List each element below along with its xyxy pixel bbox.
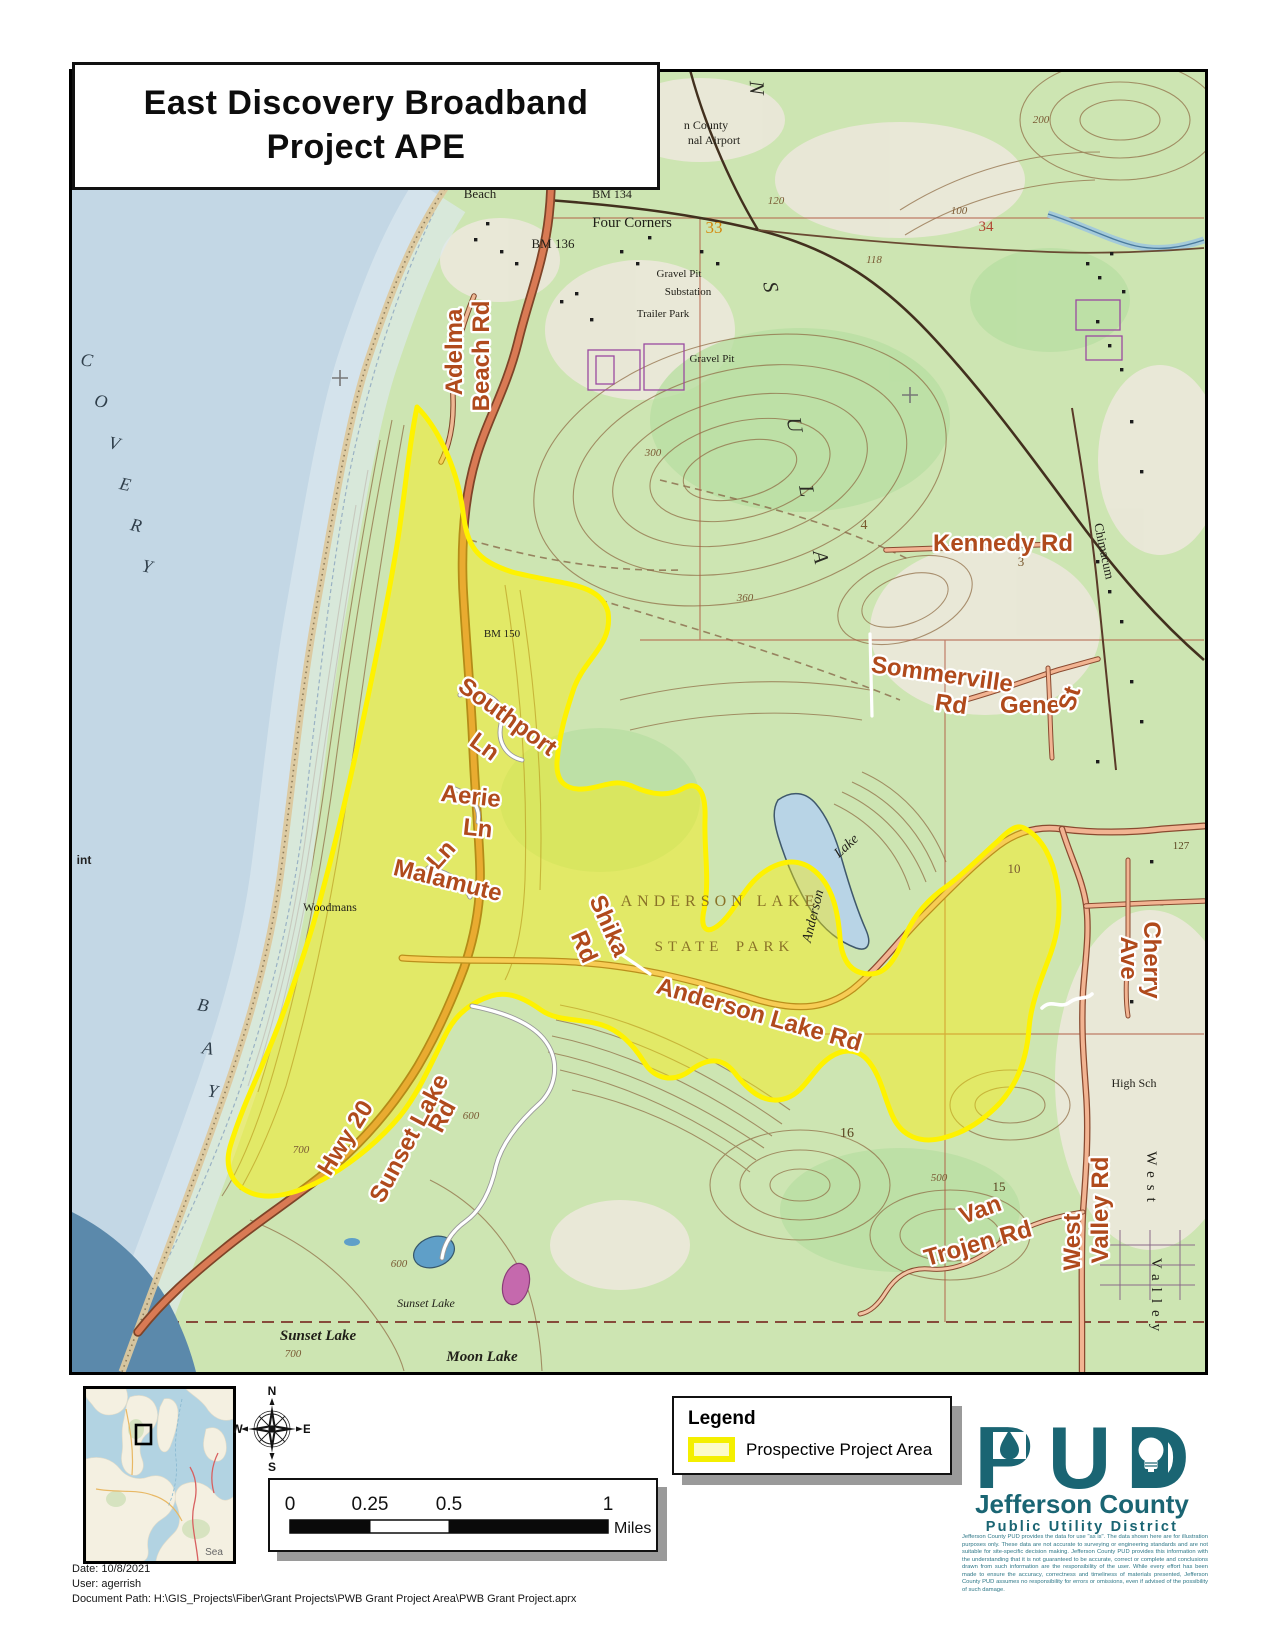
- elevation-127: 127: [1173, 840, 1190, 852]
- road-label-adelma-beach-rd: Beach Rd: [468, 301, 495, 412]
- contour-label-300: 300: [644, 447, 662, 459]
- lake-label-sunset-script: Sunset Lake: [397, 1296, 455, 1310]
- place-label-gravel-pit-2: Gravel Pit: [690, 353, 735, 365]
- north-arrow-icon: N S W E: [234, 1384, 310, 1472]
- benchmark-136: BM 136: [532, 236, 575, 251]
- scale-bar: 0 0.25 0.5 1 Miles: [270, 1480, 656, 1550]
- spot-elevation-118: 118: [866, 254, 882, 266]
- peninsula-letter-n: N: [745, 79, 770, 96]
- scale-tick-1: 1: [603, 1494, 614, 1515]
- map-document-page: Beach Four Corners BM 134 BM 136 Gravel …: [0, 0, 1275, 1650]
- map-canvas: Beach Four Corners BM 134 BM 136 Gravel …: [72, 72, 1205, 1372]
- footer-metadata: Date: 10/8/2021 User: agerrish Document …: [72, 1562, 576, 1607]
- project-area-swatch: [688, 1437, 735, 1462]
- compass-s-label: S: [268, 1460, 276, 1472]
- compass-n-label: N: [268, 1384, 277, 1398]
- compass-w-label: W: [234, 1422, 243, 1436]
- park-label-anderson-lake: ANDERSON LAKE: [621, 893, 820, 910]
- place-label-woodmans: Woodmans: [303, 900, 357, 914]
- road-label-aerie-ln: Ln: [462, 814, 494, 844]
- contour-label-700a: 700: [293, 1144, 310, 1156]
- inset-map-canvas: Sea: [86, 1389, 233, 1561]
- contour-label-500: 500: [931, 1172, 948, 1184]
- section-number-33: 33: [706, 218, 723, 237]
- lake-label-moon: Moon Lake: [445, 1349, 518, 1365]
- inset-locator-map: Sea: [83, 1386, 236, 1564]
- place-label-valley-vertical: Valley: [1148, 1258, 1164, 1338]
- contour-label-200: 200: [1033, 114, 1050, 126]
- legend-item-project-area: Prospective Project Area: [688, 1437, 950, 1462]
- legend-item-label: Prospective Project Area: [746, 1440, 932, 1460]
- scale-tick-025: 0.25: [352, 1494, 389, 1515]
- contour-label-600a: 600: [463, 1110, 480, 1122]
- park-label-park: PARK: [736, 939, 795, 955]
- footer-document-path: Document Path: H:\GIS_Projects\Fiber\Gra…: [72, 1592, 576, 1607]
- legend-box: Legend Prospective Project Area: [672, 1396, 952, 1475]
- road-label-sommerville-rd: Rd: [933, 689, 968, 720]
- place-label-trailer-park: Trailer Park: [637, 308, 690, 320]
- compass-rose: N S W E: [234, 1384, 310, 1472]
- place-label-substation: Substation: [665, 286, 712, 298]
- airport-label-1: n County: [684, 118, 728, 132]
- pud-logo-graphic: PUD Jefferson County Public Utility Dist…: [960, 1396, 1204, 1534]
- page-title-line2: Project APE: [75, 126, 657, 170]
- pud-logo: PUD Jefferson County Public Utility Dist…: [960, 1396, 1204, 1534]
- road-label-valley-rd: Valley Rd: [1087, 1157, 1114, 1264]
- section-number-4: 4: [861, 518, 868, 533]
- scale-unit-label: Miles: [614, 1520, 651, 1537]
- road-label-adelma: Adelma: [441, 308, 468, 395]
- lake-label-sunset: Sunset Lake: [280, 1328, 357, 1344]
- contour-label-700b: 700: [285, 1348, 302, 1360]
- road-label-cherry-ave: Ave: [1115, 936, 1142, 979]
- legend-title: Legend: [688, 1408, 950, 1430]
- scale-bar-box: 0 0.25 0.5 1 Miles: [268, 1478, 658, 1552]
- contour-label-120: 120: [768, 195, 785, 207]
- contour-label-100: 100: [951, 205, 968, 217]
- page-title-line1: East Discovery Broadband: [75, 82, 657, 126]
- footer-date: Date: 10/8/2021: [72, 1562, 576, 1577]
- logo-org-name: Jefferson County: [975, 1489, 1189, 1519]
- place-label-west-vertical: West: [1143, 1151, 1159, 1209]
- section-number-16: 16: [840, 1126, 854, 1141]
- footer-user: User: agerrish: [72, 1577, 576, 1592]
- road-label-west: West: [1059, 1214, 1086, 1271]
- road-label-gene: Gene: [1000, 692, 1060, 719]
- place-label-four-corners: Four Corners: [592, 215, 672, 231]
- section-number-34: 34: [979, 219, 995, 235]
- title-box: East Discovery Broadband Project APE: [72, 62, 660, 190]
- park-label-state: STATE: [655, 939, 724, 955]
- place-label-gravel-pit-1: Gravel Pit: [657, 268, 702, 280]
- road-label-kennedy-rd: Kennedy Rd: [933, 530, 1073, 557]
- benchmark-150: BM 150: [484, 628, 521, 640]
- section-number-10: 10: [1008, 861, 1021, 876]
- contour-label-600b: 600: [391, 1258, 408, 1270]
- scale-tick-0: 0: [285, 1494, 296, 1515]
- compass-e-label: E: [303, 1422, 310, 1436]
- small-pond: [344, 1238, 360, 1246]
- contour-label-360: 360: [736, 592, 754, 604]
- inset-label-seattle: Sea: [205, 1547, 223, 1558]
- place-label-high-school: High Sch: [1112, 1076, 1157, 1090]
- airport-label-2: nal Airport: [688, 133, 741, 147]
- logo-org-subtitle: Public Utility District: [986, 1519, 1178, 1534]
- logo-disclaimer-text: Jefferson County PUD provides the data f…: [962, 1534, 1208, 1594]
- place-label-point: int: [77, 853, 92, 867]
- scale-tick-05: 0.5: [436, 1494, 462, 1515]
